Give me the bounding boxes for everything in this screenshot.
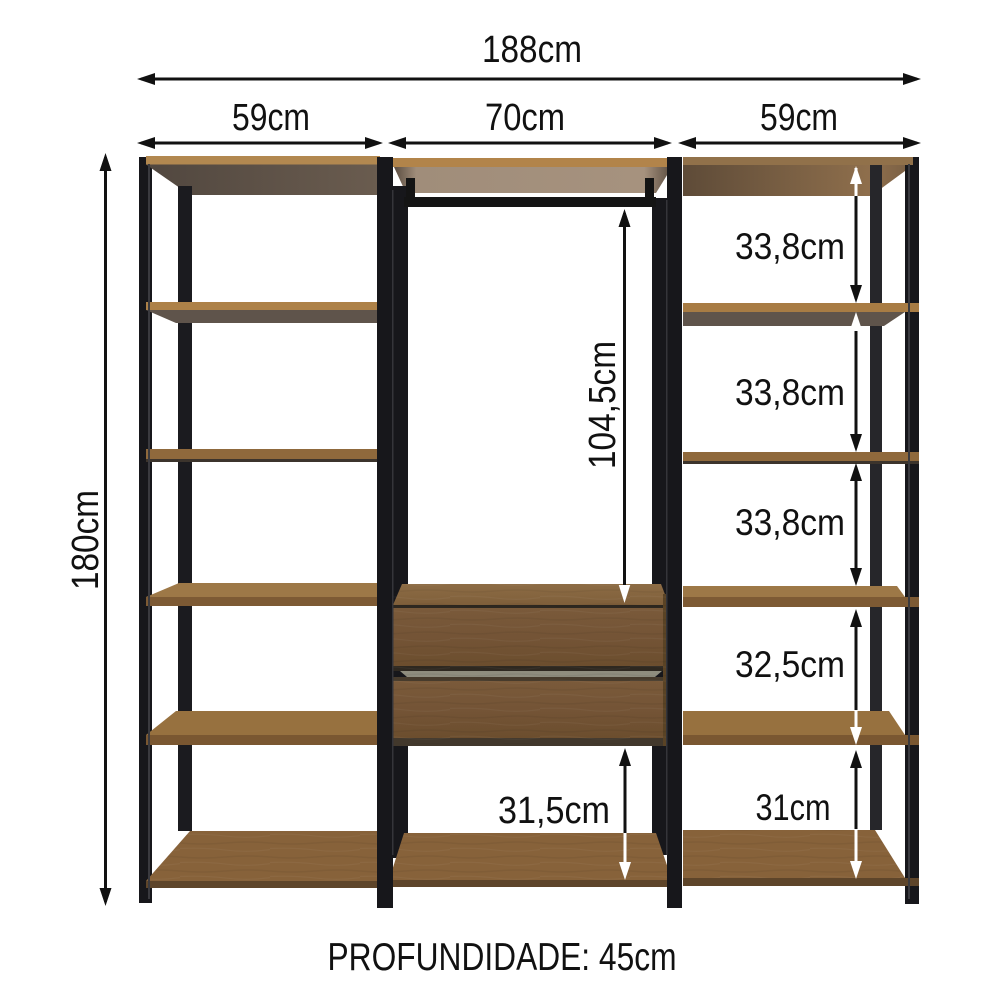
svg-text:59cm: 59cm bbox=[232, 97, 310, 139]
svg-text:59cm: 59cm bbox=[760, 97, 838, 139]
svg-text:31cm: 31cm bbox=[756, 787, 831, 828]
svg-text:PROFUNDIDADE: 45cm: PROFUNDIDADE: 45cm bbox=[328, 936, 677, 979]
svg-text:31,5cm: 31,5cm bbox=[498, 790, 610, 832]
svg-text:33,8cm: 33,8cm bbox=[735, 372, 845, 413]
svg-text:180cm: 180cm bbox=[65, 490, 107, 590]
svg-text:104,5cm: 104,5cm bbox=[582, 341, 624, 469]
svg-text:188cm: 188cm bbox=[482, 29, 582, 71]
svg-text:70cm: 70cm bbox=[485, 97, 565, 139]
svg-text:33,8cm: 33,8cm bbox=[735, 502, 845, 543]
svg-text:32,5cm: 32,5cm bbox=[735, 644, 845, 685]
svg-text:33,8cm: 33,8cm bbox=[735, 226, 845, 267]
